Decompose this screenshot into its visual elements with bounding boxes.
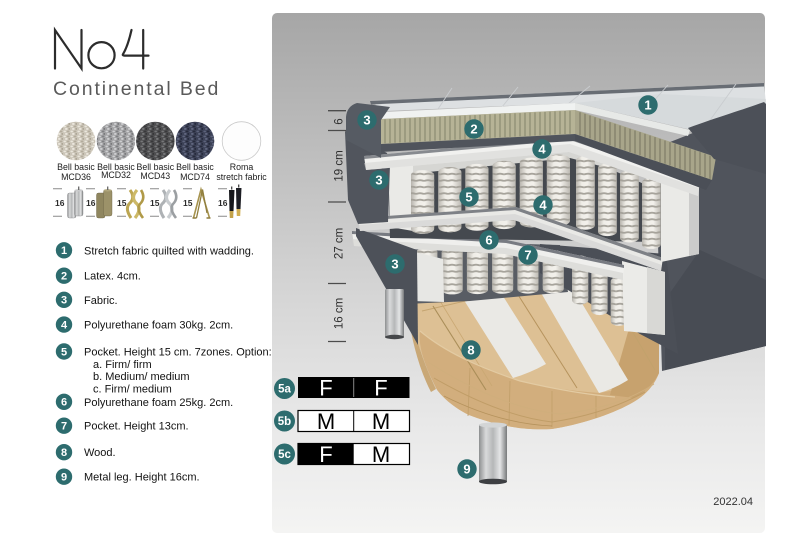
svg-text:stretch fabric: stretch fabric: [216, 172, 267, 182]
svg-text:MCD32: MCD32: [101, 170, 131, 180]
svg-text:9: 9: [463, 462, 470, 477]
svg-text:8: 8: [61, 447, 67, 459]
svg-text:3: 3: [363, 113, 370, 128]
svg-text:b. Medium/ medium: b. Medium/ medium: [93, 371, 190, 383]
svg-text:4: 4: [539, 198, 547, 213]
svg-text:16: 16: [55, 198, 65, 208]
svg-text:Polyurethane foam 25kg. 2cm.: Polyurethane foam 25kg. 2cm.: [84, 397, 233, 409]
svg-text:2: 2: [470, 122, 477, 137]
svg-text:15: 15: [117, 198, 127, 208]
svg-text:6: 6: [485, 233, 492, 248]
svg-text:15: 15: [150, 198, 160, 208]
svg-text:M: M: [317, 409, 335, 434]
svg-text:4: 4: [538, 142, 546, 157]
svg-text:MCD74: MCD74: [180, 172, 210, 182]
svg-text:Roma: Roma: [230, 162, 254, 172]
svg-text:5a: 5a: [278, 384, 291, 396]
svg-text:19 cm: 19 cm: [334, 150, 346, 181]
svg-text:3: 3: [375, 173, 382, 188]
svg-text:Fabric.: Fabric.: [84, 295, 118, 307]
svg-text:8: 8: [467, 343, 474, 358]
svg-text:Pocket. Height 13cm.: Pocket. Height 13cm.: [84, 421, 189, 433]
svg-text:Wood.: Wood.: [84, 447, 116, 459]
svg-text:M: M: [372, 442, 390, 467]
svg-text:4: 4: [61, 320, 68, 332]
svg-text:Bell basic: Bell basic: [57, 162, 95, 172]
svg-text:7: 7: [61, 421, 67, 433]
svg-text:16 cm: 16 cm: [334, 298, 346, 329]
svg-text:M: M: [372, 409, 390, 434]
svg-text:F: F: [374, 376, 387, 401]
svg-text:3: 3: [61, 295, 67, 307]
svg-text:1: 1: [61, 245, 67, 257]
svg-text:c. Firm/ medium: c. Firm/ medium: [93, 383, 172, 395]
svg-text:MCD43: MCD43: [140, 171, 170, 181]
svg-text:6: 6: [334, 118, 346, 124]
svg-text:15: 15: [183, 198, 193, 208]
svg-text:Pocket. Height 15 cm. 7zones.: Pocket. Height 15 cm. 7zones. Option:: [84, 347, 272, 359]
svg-text:F: F: [319, 376, 332, 401]
svg-text:1: 1: [644, 98, 651, 113]
svg-text:Stretch fabric quilted with wa: Stretch fabric quilted with wadding.: [84, 245, 254, 257]
svg-text:9: 9: [61, 472, 67, 484]
svg-text:Polyurethane foam 30kg. 2cm.: Polyurethane foam 30kg. 2cm.: [84, 320, 233, 332]
svg-text:F: F: [319, 442, 332, 467]
svg-text:16: 16: [218, 198, 228, 208]
svg-text:6: 6: [61, 397, 67, 409]
svg-text:7: 7: [524, 248, 531, 263]
svg-text:Bell basic: Bell basic: [176, 162, 214, 172]
svg-text:Metal leg. Height 16cm.: Metal leg. Height 16cm.: [84, 472, 200, 484]
svg-text:2: 2: [61, 271, 67, 283]
svg-text:5c: 5c: [278, 449, 291, 461]
svg-text:3: 3: [391, 257, 398, 272]
svg-text:5b: 5b: [278, 416, 291, 428]
svg-text:Continental Bed: Continental Bed: [53, 78, 220, 100]
svg-text:Latex. 4cm.: Latex. 4cm.: [84, 271, 141, 283]
svg-text:16: 16: [86, 198, 96, 208]
svg-text:27 cm: 27 cm: [334, 228, 346, 259]
svg-text:2022.04: 2022.04: [713, 496, 753, 508]
svg-text:5: 5: [465, 190, 472, 205]
svg-text:a. Firm/ firm: a. Firm/ firm: [93, 359, 152, 371]
svg-text:MCD36: MCD36: [61, 172, 91, 182]
svg-text:5: 5: [61, 346, 67, 358]
